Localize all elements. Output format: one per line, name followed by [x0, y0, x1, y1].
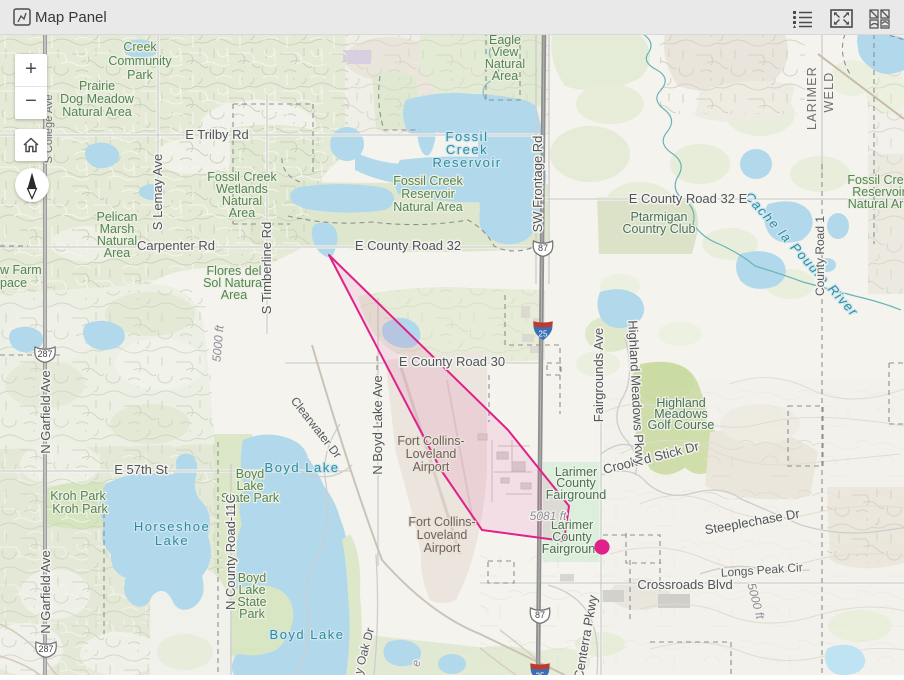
svg-text:Area: Area [221, 288, 247, 302]
svg-text:E County Road 32 E: E County Road 32 E [629, 191, 748, 206]
svg-text:5081 ft: 5081 ft [530, 509, 567, 523]
svg-text:Horseshoe: Horseshoe [134, 519, 210, 534]
svg-text:Fort Collins-: Fort Collins- [397, 434, 464, 448]
svg-text:287: 287 [38, 644, 53, 654]
svg-text:287: 287 [37, 349, 52, 359]
svg-text:25: 25 [539, 330, 548, 339]
svg-text:Natural Area: Natural Area [62, 105, 132, 119]
svg-text:87: 87 [535, 610, 545, 620]
svg-text:N County Road-11C: N County Road-11C [223, 494, 238, 610]
svg-text:Kroh Park: Kroh Park [50, 489, 106, 503]
svg-text:Natural Are: Natural Are [848, 197, 904, 211]
svg-text:Lake: Lake [155, 533, 189, 548]
svg-text:Crossroads Blvd: Crossroads Blvd [637, 577, 732, 592]
svg-text:Loveland: Loveland [406, 447, 457, 461]
svg-text:87: 87 [538, 243, 548, 253]
svg-text:w Farm: w Farm [0, 263, 42, 277]
svg-text:N Boyd Lake Ave: N Boyd Lake Ave [370, 375, 385, 475]
svg-text:Dog Meadow: Dog Meadow [60, 92, 135, 106]
svg-text:Reservoir: Reservoir [432, 155, 501, 170]
svg-text:Park: Park [127, 68, 153, 82]
svg-text:Community: Community [108, 54, 172, 68]
svg-text:N Garfield Ave: N Garfield Ave [38, 550, 53, 634]
svg-text:Boyd Lake: Boyd Lake [265, 460, 340, 475]
svg-text:County Road 1: County Road 1 [813, 216, 827, 296]
svg-text:Natural Area: Natural Area [393, 200, 463, 214]
svg-text:Park: Park [239, 607, 265, 621]
svg-text:Area: Area [492, 69, 518, 83]
svg-text:pace: pace [0, 276, 27, 290]
svg-text:SW Frontage Rd: SW Frontage Rd [530, 136, 545, 233]
svg-text:E 57th St: E 57th St [114, 462, 168, 477]
svg-text:25: 25 [536, 672, 545, 676]
svg-text:Golf Course: Golf Course [648, 418, 715, 432]
svg-text:Country Club: Country Club [623, 222, 696, 236]
svg-text:Airport: Airport [413, 460, 450, 474]
svg-text:Fairground: Fairground [546, 488, 606, 502]
svg-text:Area: Area [104, 246, 130, 260]
svg-text:Fairground: Fairground [542, 542, 602, 556]
svg-text:E County Road 30: E County Road 30 [399, 354, 505, 369]
svg-text:Airport: Airport [424, 541, 461, 555]
svg-text:S Timberline Rd: S Timberline Rd [259, 222, 274, 314]
svg-text:E County Road 32: E County Road 32 [355, 238, 461, 253]
svg-text:Boyd Lake: Boyd Lake [270, 627, 345, 642]
svg-text:Creek: Creek [123, 40, 157, 54]
svg-text:Fossil Creek: Fossil Creek [393, 174, 463, 188]
svg-text:Kroh Park: Kroh Park [52, 502, 108, 516]
svg-text:Prairie: Prairie [79, 79, 115, 93]
svg-text:S Lemay Ave: S Lemay Ave [150, 154, 165, 230]
svg-text:Fairgrounds Ave: Fairgrounds Ave [591, 328, 606, 422]
svg-text:N Garfield Ave: N Garfield Ave [38, 370, 53, 454]
svg-text:Carpenter Rd: Carpenter Rd [137, 238, 215, 253]
svg-text:Fort Collins-: Fort Collins- [408, 515, 475, 529]
svg-text:LARIMER: LARIMER [805, 66, 819, 130]
svg-text:Area: Area [229, 206, 255, 220]
svg-text:Loveland: Loveland [417, 528, 468, 542]
svg-text:WELD: WELD [822, 72, 836, 113]
svg-text:E Trilby Rd: E Trilby Rd [185, 127, 249, 142]
svg-text:Reservoir: Reservoir [401, 187, 455, 201]
